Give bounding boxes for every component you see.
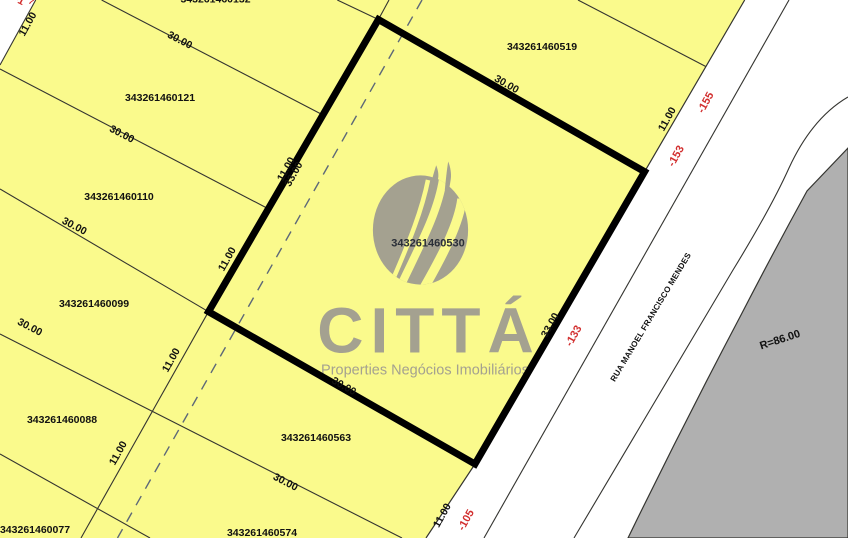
svg-text:343261460530: 343261460530 <box>391 238 464 250</box>
svg-text:343261460110: 343261460110 <box>84 191 154 203</box>
svg-text:343261460077: 343261460077 <box>0 524 70 536</box>
svg-text:343261460132: 343261460132 <box>180 0 250 6</box>
svg-text:CITTÁ: CITTÁ <box>317 295 540 367</box>
svg-text:343261460519: 343261460519 <box>507 41 577 53</box>
svg-text:343261460099: 343261460099 <box>59 298 129 310</box>
svg-text:343261460563: 343261460563 <box>281 432 351 444</box>
svg-text:Properties Negócios Imobiliári: Properties Negócios Imobiliários <box>321 363 529 379</box>
svg-text:343261460121: 343261460121 <box>125 92 195 104</box>
svg-text:343261460088: 343261460088 <box>27 414 97 426</box>
svg-text:343261460574: 343261460574 <box>227 527 297 538</box>
